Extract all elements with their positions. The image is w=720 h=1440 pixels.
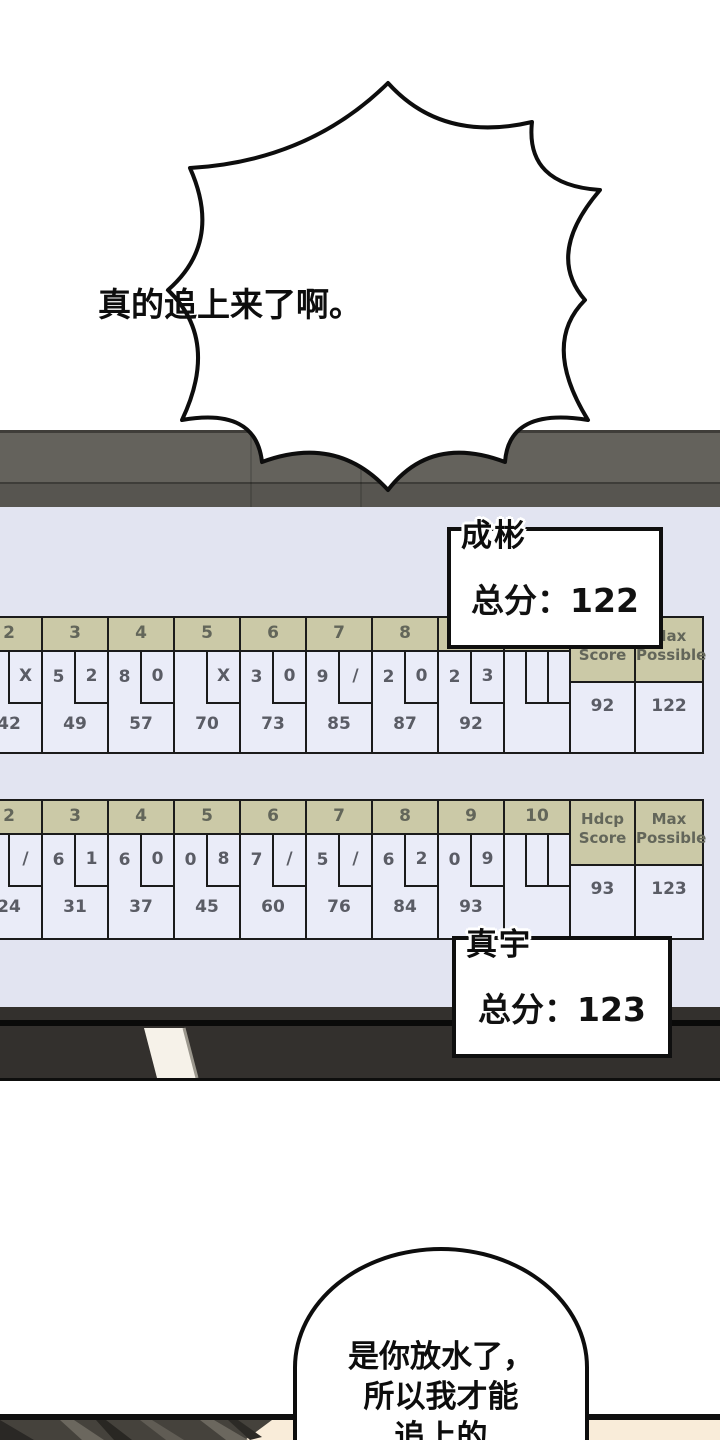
ball-2: 0 [140,652,173,704]
frame-score: 84 [373,887,437,938]
player-name-label: 成彬 [461,510,527,555]
frame-score: 49 [43,704,107,752]
ball-1 [0,652,8,702]
frame-number: 8 [373,801,437,835]
frame-score: 37 [109,887,173,938]
frame-number: 3 [43,801,107,835]
frame-number: 6 [241,801,305,835]
ball-1: 7 [241,835,272,885]
hdcp-label: Hdcp [571,810,634,829]
frame-number: 2 [0,618,41,652]
ball-2: X [8,652,41,704]
frame-8: 86284 [373,801,439,938]
frame-6: 67/60 [241,801,307,938]
frame-number: 4 [109,801,173,835]
ball-1: 0 [175,835,206,885]
frame-balls: X [0,652,41,704]
frame-score: 57 [109,704,173,752]
ball-2: 9 [470,835,503,887]
frame-number: 10 [505,801,569,835]
ball-1: 5 [307,835,338,885]
frames-row: 2/2436131460375084567/6075/7686284909931… [0,801,571,938]
ball-box-empty [547,652,569,704]
ball-2: 1 [74,835,107,887]
frame-5: 5X70 [175,618,241,752]
frame-balls: / [0,835,41,887]
ball-2: 2 [74,652,107,704]
frame-4: 46037 [109,801,175,938]
frame-score: 76 [307,887,371,938]
ball-2: 3 [470,652,503,704]
player-total-box-bottom: 真宇 总分：123 [452,936,672,1058]
frame-4: 48057 [109,618,175,752]
frame-score: 45 [175,887,239,938]
ball-2: / [8,835,41,887]
frame-9: 90993 [439,801,505,938]
ball-box-empty [547,835,569,887]
frame-balls: 80 [109,652,173,704]
frame-7: 79/85 [307,618,373,752]
ball-1 [175,652,206,702]
bezel-reflection [0,1007,220,1078]
comic-page: 2X4235249480575X706307379/85820879239210… [0,0,720,1440]
frame-number: 7 [307,618,371,652]
player-total-text: 总分：123 [456,983,668,1031]
hdcp-score-header: Hdcp Score [571,801,634,866]
ball-1: 5 [43,652,74,702]
ball-1: 6 [373,835,404,885]
frame-6: 63073 [241,618,307,752]
frame-score: 85 [307,704,371,752]
ball-1: 8 [109,652,140,702]
frame-8: 82087 [373,618,439,752]
frame-balls: X [175,652,239,704]
score-label: Score [571,829,634,848]
hdcp-score-value: 92 [571,683,634,752]
frame-balls: 52 [43,652,107,704]
round-speech-bubble: 是你放水了， 所以我才能 追上的 [293,1247,589,1440]
frame-number: 5 [175,618,239,652]
ball-box-empty [525,652,547,704]
frame-score: 31 [43,887,107,938]
max-possible-value: 122 [636,683,702,752]
frame-balls: 20 [373,652,437,704]
burst-bubble-text: 真的追上来了啊。 [0,278,460,326]
ball-2: 0 [272,652,305,704]
player-total-box-top: 成彬 总分：122 [447,527,663,649]
bubble-line-3: 追上的 [297,1417,585,1440]
frame-number: 3 [43,618,107,652]
frame-score: 73 [241,704,305,752]
frame-5: 50845 [175,801,241,938]
frame-balls: 23 [439,652,503,704]
ball-1: 2 [439,652,470,702]
frame-balls [505,652,569,704]
frame-score: 92 [439,704,503,752]
frame-number: 2 [0,801,41,835]
frame-balls: 62 [373,835,437,887]
ball-1: 6 [43,835,74,885]
frame-score: 42 [0,704,41,752]
frame-balls: 08 [175,835,239,887]
frame-2: 2X42 [0,618,43,752]
frame-balls: 9/ [307,652,371,704]
frame-7: 75/76 [307,801,373,938]
ball-2: 2 [404,835,437,887]
round-bubble-text: 是你放水了， 所以我才能 追上的 [297,1337,585,1440]
ball-1: 3 [241,652,272,702]
frame-balls: 7/ [241,835,305,887]
ball-2: / [272,835,305,887]
ball-2: X [206,652,239,704]
scoreboard-board-bottom: 2/2436131460375084567/6075/7686284909931… [0,799,704,940]
possible-label: Possible [636,829,702,848]
frame-number: 9 [439,801,503,835]
frame-number: 5 [175,801,239,835]
frame-number: 7 [307,801,371,835]
frame-balls: 60 [109,835,173,887]
ball-box-empty [525,835,547,887]
frame-score: 87 [373,704,437,752]
ball-2: / [338,652,371,704]
ball-1: 9 [307,652,338,702]
frame-balls: 5/ [307,835,371,887]
bubble-line-2: 所以我才能 [297,1377,585,1417]
ball-1 [0,835,8,885]
ball-2: 0 [140,835,173,887]
player-total-text: 总分：122 [451,574,659,622]
ball-1: 6 [109,835,140,885]
frame-number: 8 [373,618,437,652]
max-possible-header: Max Possible [636,801,702,866]
frame-2: 2/24 [0,801,43,938]
ball-2: 0 [404,652,437,704]
ball-1: 2 [373,652,404,702]
frame-3: 35249 [43,618,109,752]
frame-3: 36131 [43,801,109,938]
frame-score [505,704,569,752]
bubble-line-1: 是你放水了， [297,1337,585,1377]
max-possible-column: Max Possible 123 [636,801,702,938]
frame-balls: 30 [241,652,305,704]
frame-number: 6 [241,618,305,652]
player-name-label: 真宇 [466,919,532,964]
frame-score: 70 [175,704,239,752]
frame-10: 10 [505,801,571,938]
max-possible-value: 123 [636,866,702,938]
ball-2: / [338,835,371,887]
frame-score: 60 [241,887,305,938]
hdcp-score-value: 93 [571,866,634,938]
frame-balls [505,835,569,887]
max-label: Max [636,810,702,829]
frame-number: 4 [109,618,173,652]
frame-balls: 61 [43,835,107,887]
frame-score: 24 [0,887,41,938]
character-hair [0,1420,280,1440]
ball-2: 8 [206,835,239,887]
ball-1: 0 [439,835,470,885]
frame-balls: 09 [439,835,503,887]
hdcp-score-column: Hdcp Score 93 [571,801,636,938]
